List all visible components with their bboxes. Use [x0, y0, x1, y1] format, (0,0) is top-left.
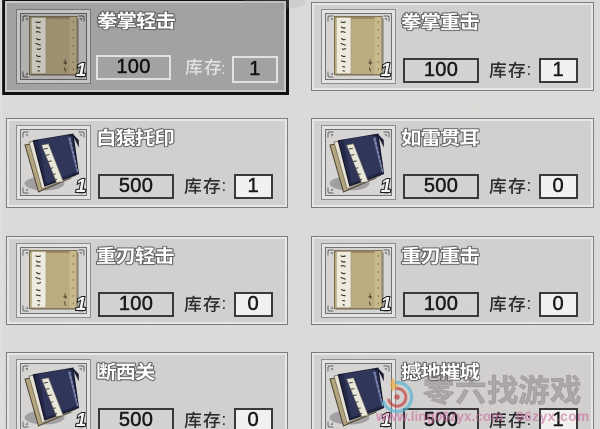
svg-text:1: 1 [75, 175, 85, 196]
svg-text:1: 1 [380, 175, 390, 196]
svg-text:1: 1 [75, 293, 85, 314]
svg-text:1: 1 [380, 293, 390, 314]
svg-text:1: 1 [75, 409, 85, 429]
svg-text:1: 1 [76, 59, 86, 80]
svg-text:1: 1 [380, 59, 390, 80]
svg-text:1: 1 [380, 409, 390, 429]
